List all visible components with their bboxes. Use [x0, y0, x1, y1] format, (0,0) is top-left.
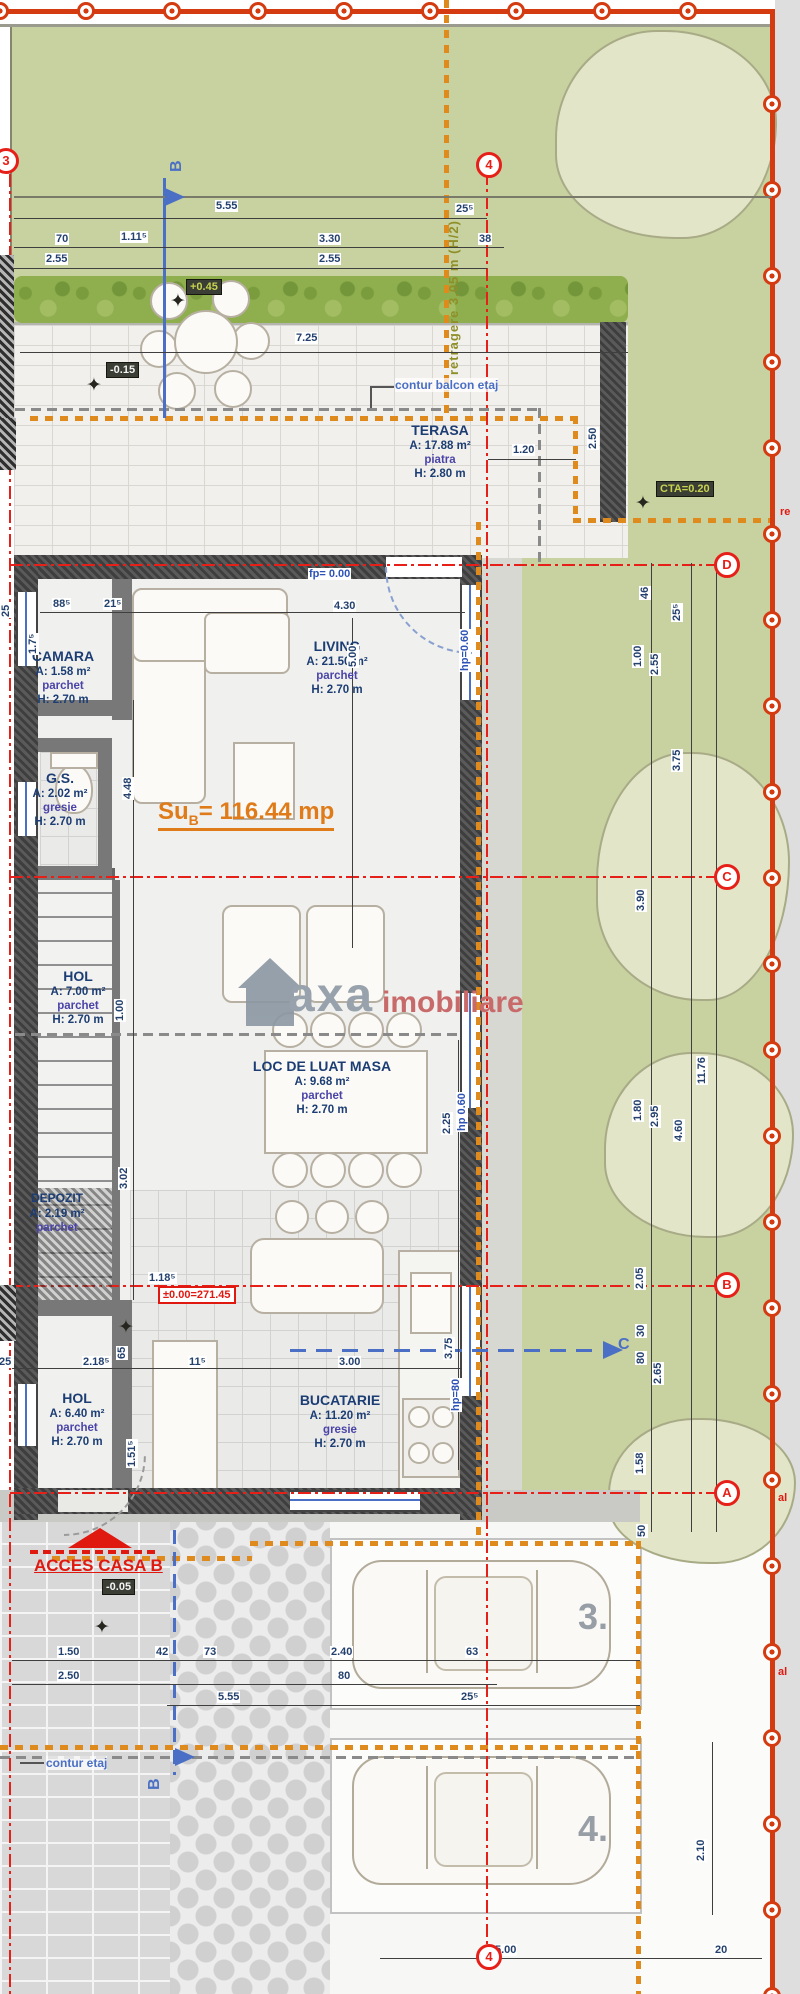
dim-line [167, 1705, 640, 1706]
room-floor: parchet [8, 679, 118, 693]
property-line-top [0, 9, 775, 14]
dim-label: 25⁵ [671, 603, 683, 622]
area-value: = 116.44 mp [199, 798, 334, 825]
dim-label: 80 [337, 1670, 351, 1682]
dim-label: 2.55 [318, 253, 341, 265]
level-badge-hedge: +0.45 [186, 279, 222, 295]
dim-label: 1.80 [632, 1099, 644, 1122]
leader-line [20, 1762, 44, 1764]
parapet-label: hp=0.60 [459, 629, 471, 672]
axis-b-line [10, 1285, 718, 1287]
dim-label: 1.18⁵ [148, 1272, 177, 1284]
dim-label: 11⁵ [188, 1356, 207, 1368]
room-height: H: 2.70 m [237, 1103, 407, 1117]
bar-stool [355, 1200, 389, 1234]
property-node-icon [163, 2, 181, 20]
axis-marker-d: D [714, 552, 740, 578]
note-contur-balcon: contur balcon etaj [395, 378, 498, 392]
dim-label: 1.50 [57, 1646, 80, 1658]
balcony-contour [15, 408, 540, 411]
property-node-icon [507, 2, 525, 20]
room-height: H: 2.70 m [8, 693, 118, 707]
dim-label: 2.65 [652, 1362, 664, 1385]
dim-label: 65 [116, 1346, 128, 1360]
property-node-icon [763, 611, 781, 629]
room-floor: parchet [237, 1089, 407, 1103]
dim-label: 20 [714, 1944, 728, 1956]
dim-line [712, 1742, 713, 1915]
kitchen-sink [410, 1272, 452, 1334]
upper-floor-contour [15, 1033, 463, 1036]
right-margin [775, 0, 800, 1994]
room-area: A: 9.68 m² [237, 1075, 407, 1089]
section-b-label-bottom: B [146, 1778, 164, 1790]
property-node-icon [763, 95, 781, 113]
property-node-icon [763, 525, 781, 543]
dim-line [380, 1958, 762, 1959]
dim-label: 88⁵ [52, 598, 71, 610]
dim-label: 3.75 [671, 749, 683, 772]
property-node-icon [763, 439, 781, 457]
balcony-contour [538, 408, 541, 563]
parapet-label: hp 0.60 [456, 1092, 468, 1132]
room-label-bucatarie: BUCATARIE A: 11.20 m² gresie H: 2.70 m [275, 1392, 405, 1451]
dining-chair [310, 1152, 346, 1188]
car-rear-window [536, 1766, 538, 1869]
neighbor-wall-hatch [0, 255, 14, 420]
car-roof [434, 1576, 533, 1671]
level-star-icon: ✦ [94, 1618, 110, 1637]
axis-a-line [10, 1492, 718, 1494]
area-prefix: Su [158, 798, 189, 825]
dim-label: 3.30 [318, 233, 341, 245]
dim-label: 25⁵ [460, 1691, 479, 1703]
level-badge-terrace: -0.15 [106, 362, 139, 378]
watermark-text-axa: axa [288, 968, 374, 1023]
dim-label: 1.00 [632, 645, 644, 668]
dim-label: 11.76 [696, 1056, 708, 1085]
note-contur-etaj: contur etaj [46, 1756, 107, 1770]
car-rear-window [536, 1570, 538, 1673]
terrace-floor [14, 322, 628, 558]
room-area: A: 6.40 m² [27, 1407, 127, 1421]
property-node-icon [335, 2, 353, 20]
room-height: H: 2.70 m [33, 1013, 123, 1027]
dim-label: 2.10 [695, 1839, 707, 1862]
dim-label: 3.00 [338, 1356, 361, 1368]
level-star-icon: ✦ [635, 494, 651, 513]
property-node-icon [763, 955, 781, 973]
dim-line [14, 196, 772, 198]
property-node-icon [763, 1729, 781, 1747]
edge-label-al: al [778, 1492, 787, 1504]
dim-label: 1.58 [634, 1452, 646, 1475]
burner [432, 1442, 454, 1464]
entry-canopy [30, 1550, 155, 1554]
setback-line [250, 1541, 640, 1546]
room-label-terasa: TERASA A: 17.88 m² piatra H: 2.80 m [375, 422, 505, 481]
total-usable-area: SuB= 116.44 mp [158, 798, 334, 831]
room-floor: gresie [275, 1423, 405, 1437]
room-label-hol2: HOL A: 6.40 m² parchet H: 2.70 m [27, 1390, 127, 1449]
section-b-line-bottom [173, 1530, 176, 1775]
property-node-icon [763, 1213, 781, 1231]
dim-label: 1.11⁵ [120, 231, 148, 243]
room-name: BUCATARIE [275, 1392, 405, 1409]
dim-label: 2.05 [634, 1267, 646, 1290]
room-label-masa: LOC DE LUAT MASA A: 9.68 m² parchet H: 2… [237, 1058, 407, 1117]
dim-line [14, 218, 487, 219]
room-name: LIVING [272, 638, 402, 655]
threshold-label: fp= 0.00 [308, 568, 351, 580]
parapet-label: hp=80 [450, 1378, 462, 1412]
dim-label: 1.20 [512, 444, 535, 456]
terrace-chair [140, 330, 178, 368]
dim-label: 63 [465, 1646, 479, 1658]
car-top-view [352, 1756, 611, 1885]
dim-line [40, 612, 465, 613]
bar-stool [315, 1200, 349, 1234]
burner [408, 1406, 430, 1428]
dim-label: 2.55 [649, 653, 661, 676]
area-sub: B [189, 812, 199, 828]
axis-marker-4-top: 4 [476, 152, 502, 178]
room-name: DEPOZIT [12, 1190, 102, 1207]
kitchen-island [250, 1238, 384, 1314]
room-label-camara: CAMARA A: 1.58 m² parchet H: 2.70 m [8, 648, 118, 707]
room-label-gs: G.S. A: 2.02 m² gresie H: 2.70 m [15, 770, 105, 829]
setback-line [476, 522, 481, 1543]
section-b-flag-bottom [175, 1748, 195, 1766]
car-windshield [426, 1766, 428, 1869]
hedge-planter [14, 276, 628, 323]
parking-number-3: 3. [578, 1596, 608, 1638]
axis-d-line [10, 564, 718, 566]
property-node-icon [763, 697, 781, 715]
neighbor-wall-hatch [0, 1285, 16, 1341]
setback-line [636, 1541, 641, 1994]
dim-label: 7.25 [295, 332, 318, 344]
dim-label: 2.25 [441, 1112, 453, 1135]
entry-arrow-icon [68, 1528, 132, 1548]
dim-label: 25 [0, 1356, 12, 1368]
dim-label: 25 [0, 604, 12, 618]
car-roof [434, 1772, 533, 1867]
dim-label: 70 [55, 233, 69, 245]
dim-label: 2.95 [649, 1105, 661, 1128]
room-area: A: 1.58 m² [8, 665, 118, 679]
property-node-icon [77, 2, 95, 20]
setback-line [573, 518, 772, 523]
dim-label: 2.50 [57, 1670, 80, 1682]
dim-line [14, 247, 504, 248]
room-floor: parchet [33, 999, 123, 1013]
section-c-label: C [618, 1336, 630, 1354]
axis-marker-4-bottom: 4 [476, 1944, 502, 1970]
property-node-icon [763, 1901, 781, 1919]
terrace-chair [214, 370, 252, 408]
property-node-icon [763, 869, 781, 887]
property-node-icon [0, 2, 9, 20]
room-name: TERASA [375, 422, 505, 439]
dim-label: 2.55 [45, 253, 68, 265]
dim-line [12, 1368, 462, 1369]
property-node-icon [763, 1041, 781, 1059]
axis-c-line [10, 876, 718, 878]
setback-line [573, 416, 578, 520]
watermark-body [246, 988, 294, 1026]
property-node-icon [763, 783, 781, 801]
level-star-icon: ✦ [118, 1318, 134, 1337]
room-floor: piatra [375, 453, 505, 467]
axis-marker-c: C [714, 864, 740, 890]
dim-line [651, 563, 652, 1532]
room-name: G.S. [15, 770, 105, 787]
section-b-label-top: B [168, 160, 186, 172]
dim-label: 5.55 [217, 1691, 240, 1703]
dim-label: 73 [203, 1646, 217, 1658]
tree [555, 30, 777, 239]
room-name: CAMARA [8, 648, 118, 665]
property-node-icon [763, 353, 781, 371]
leader-line [370, 386, 372, 408]
dim-label: 3.90 [635, 889, 647, 912]
property-node-icon [763, 1643, 781, 1661]
property-node-icon [763, 1815, 781, 1833]
dim-label: 3.75 [443, 1337, 455, 1360]
neighbor-wall-hatch [0, 418, 16, 470]
property-node-icon [593, 2, 611, 20]
dim-label: 30 [635, 1324, 647, 1338]
level-badge-entry: -0.05 [102, 1579, 135, 1595]
dim-label: 2.18⁵ [82, 1356, 111, 1368]
rear-strip [640, 1543, 772, 1994]
side-path [482, 522, 522, 1543]
entry-label: ACCES CASA B [34, 1556, 163, 1576]
room-name: LOC DE LUAT MASA [237, 1058, 407, 1075]
dim-line [716, 563, 717, 1532]
dim-label: 4.48 [122, 777, 134, 800]
section-b-line-top [163, 178, 166, 418]
axis-marker-a: A [714, 1480, 740, 1506]
room-label-depozit: DEPOZIT A: 2.19 m² parchet [12, 1190, 102, 1235]
level-star-icon: ✦ [86, 376, 102, 395]
axis-marker-b: B [714, 1272, 740, 1298]
dim-label: 4.30 [333, 600, 356, 612]
watermark-text-imobiliare: imobiliare [382, 986, 524, 1020]
dim-label: 2.40 [330, 1646, 353, 1658]
room-area: A: 7.00 m² [33, 985, 123, 999]
site-plan-canvas: 3. 4. B B C 3 4 4 D C B A [0, 0, 800, 1994]
burner [408, 1442, 430, 1464]
dim-label: 38 [478, 233, 492, 245]
property-line-right [770, 9, 775, 1994]
level-badge-zero: ±0.00=271.45 [158, 1286, 236, 1304]
room-floor: parchet [12, 1221, 102, 1235]
room-floor: parchet [27, 1421, 127, 1435]
dim-line [691, 563, 692, 1532]
dim-label: 21⁵ [103, 598, 122, 610]
property-node-icon [679, 2, 697, 20]
edge-label-re: re [780, 506, 790, 518]
tall-cabinet [152, 1340, 218, 1490]
property-node-icon [763, 1299, 781, 1317]
dim-label: 1.00 [114, 999, 126, 1022]
car-top-view [352, 1560, 611, 1689]
dining-chair [386, 1152, 422, 1188]
terrace-table [174, 310, 238, 374]
toilet-tank [50, 752, 98, 769]
dim-label: 50 [636, 1524, 648, 1538]
dim-label: 80 [635, 1351, 647, 1365]
dim-label: 2.50 [587, 427, 599, 450]
dim-label: 46 [639, 586, 651, 600]
section-b-flag-top [165, 188, 185, 206]
level-badge-cta: CTA=0.20 [656, 481, 714, 497]
room-height: H: 2.80 m [375, 467, 505, 481]
dim-label: 1.51⁵ [126, 1439, 138, 1468]
room-area: A: 21.50 m² [272, 655, 402, 669]
car-windshield [426, 1570, 428, 1673]
dim-line [12, 1660, 640, 1661]
property-node-icon [763, 1127, 781, 1145]
room-area: A: 11.20 m² [275, 1409, 405, 1423]
dim-line [20, 352, 628, 353]
setback-line [0, 1745, 640, 1750]
parking-number-4: 4. [578, 1808, 608, 1850]
room-height: H: 2.70 m [27, 1435, 127, 1449]
property-node-icon [763, 1385, 781, 1403]
level-star-icon: ✦ [170, 292, 186, 311]
room-floor: parchet [272, 669, 402, 683]
dim-label: 42 [155, 1646, 169, 1658]
dim-label: 1.7⁵ [27, 633, 39, 655]
dim-line [14, 268, 487, 269]
leader-line [370, 386, 394, 388]
dim-line [12, 1684, 497, 1685]
edge-label-al: al [778, 1666, 787, 1678]
dim-label: 5.00 [347, 645, 359, 668]
dim-label: 5.55 [215, 200, 238, 212]
dim-label: 3.02 [118, 1167, 130, 1190]
bar-stool [275, 1200, 309, 1234]
room-name: HOL [27, 1390, 127, 1407]
room-area: A: 2.02 m² [15, 787, 105, 801]
room-name: HOL [33, 968, 123, 985]
dim-label: 25⁵ [455, 203, 474, 215]
room-area: A: 17.88 m² [375, 439, 505, 453]
setback-line [30, 416, 578, 421]
room-height: H: 2.70 m [275, 1437, 405, 1451]
fence-line [0, 24, 772, 27]
property-node-icon [763, 267, 781, 285]
room-label-hol1: HOL A: 7.00 m² parchet H: 2.70 m [33, 968, 123, 1027]
room-height: H: 2.70 m [272, 683, 402, 697]
property-node-icon [249, 2, 267, 20]
property-node-icon [763, 1471, 781, 1489]
dining-chair [272, 1152, 308, 1188]
room-area: A: 2.19 m² [12, 1207, 102, 1221]
wall-stairs-right [112, 880, 120, 1300]
property-node-icon [763, 1557, 781, 1575]
dining-chair [348, 1152, 384, 1188]
property-node-icon [421, 2, 439, 20]
room-height: H: 2.70 m [15, 815, 105, 829]
room-label-living: LIVING A: 21.50 m² parchet H: 2.70 m [272, 638, 402, 697]
setback-text: retragere 3.05 m (H/2) [446, 55, 461, 375]
room-floor: gresie [15, 801, 105, 815]
dim-label: 4.60 [673, 1119, 685, 1142]
